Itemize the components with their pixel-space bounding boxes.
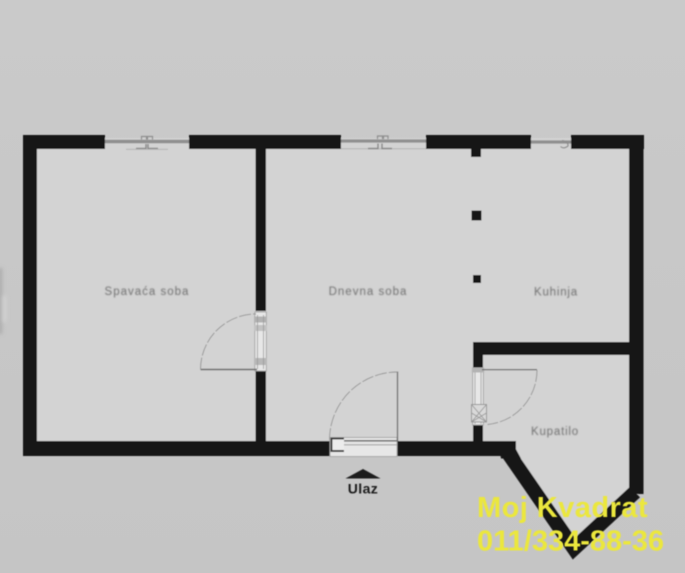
svg-text:Kupatilo: Kupatilo — [531, 426, 579, 438]
svg-text:Dnevna soba: Dnevna soba — [329, 286, 408, 298]
svg-text:Moj Kvadrat: Moj Kvadrat — [477, 492, 648, 524]
svg-text:011/334-88-36: 011/334-88-36 — [477, 526, 664, 558]
svg-text:Ulaz: Ulaz — [348, 481, 378, 497]
svg-text:Spavaća soba: Spavaća soba — [105, 286, 190, 298]
svg-text:Kuhinja: Kuhinja — [534, 287, 578, 299]
